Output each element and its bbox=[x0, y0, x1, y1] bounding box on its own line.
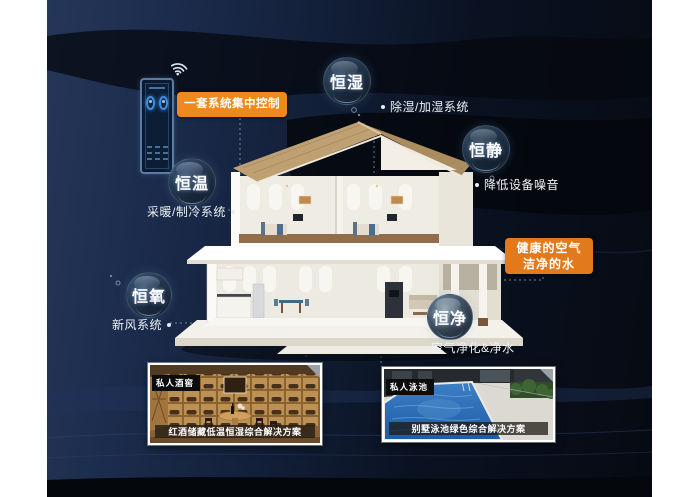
health-line-2: 洁净的水 bbox=[505, 256, 593, 272]
bullet-dot-icon bbox=[422, 346, 426, 350]
bubble-label: 恒湿 bbox=[330, 69, 364, 93]
note-fresh-air-system: 新风系统 bbox=[112, 316, 171, 333]
bubble-label: 恒温 bbox=[175, 170, 209, 194]
health-line-1: 健康的空气 bbox=[505, 240, 593, 256]
bullet-dot-icon bbox=[475, 183, 479, 187]
note-text: 采暖/制冷系统 bbox=[147, 203, 226, 220]
folded-corner-icon bbox=[540, 369, 553, 382]
note-text: 除湿/加湿系统 bbox=[390, 98, 469, 115]
dial-icon bbox=[159, 96, 168, 110]
central-control-label: 一套系统集中控制 bbox=[177, 92, 287, 117]
bubble-label: 恒氧 bbox=[132, 283, 166, 307]
bubble-hengjing: 恒静 bbox=[462, 125, 510, 173]
phone-screen bbox=[145, 83, 169, 169]
photo-caption: 红酒储藏低温恒湿综合解决方案 bbox=[155, 425, 315, 438]
note-text: 新风系统 bbox=[112, 316, 162, 333]
photo-swimming-pool: 私人泳池 别墅泳池绿色综合解决方案 bbox=[382, 367, 555, 442]
note-air-water-purification: 空气净化&净水 bbox=[422, 339, 515, 356]
note-noise-reduction: 降低设备噪音 bbox=[475, 176, 559, 193]
note-dehumidify-system: 除湿/加湿系统 bbox=[381, 98, 469, 115]
photo-tag: 私人酒窖 bbox=[152, 375, 200, 391]
folded-corner-icon bbox=[307, 365, 320, 378]
note-text: 空气净化&净水 bbox=[431, 339, 515, 356]
photo-wine-cellar: 私人酒窖 红酒储藏低温恒湿综合解决方案 bbox=[148, 363, 322, 445]
bubble-hengshi: 恒湿 bbox=[323, 57, 371, 105]
bullet-dot-icon bbox=[167, 323, 171, 327]
dial-icon bbox=[146, 96, 155, 110]
smart-home-app-phone bbox=[140, 78, 174, 174]
phone-app-header bbox=[149, 87, 165, 89]
bullet-dot-icon bbox=[381, 105, 385, 109]
bubble-label: 恒净 bbox=[433, 305, 467, 329]
bubble-hengyang: 恒氧 bbox=[126, 272, 172, 318]
bubble-label: 恒静 bbox=[469, 137, 503, 161]
scene-background: 一套系统集中控制 恒湿 恒静 恒温 恒氧 恒净 除湿/加湿系统 降低设备噪音 采… bbox=[47, 0, 652, 497]
phone-stat-rows bbox=[146, 146, 168, 160]
bullet-dot-icon bbox=[231, 210, 235, 214]
note-heating-cooling-system: 采暖/制冷系统 bbox=[147, 203, 235, 220]
bubble-hengjin: 恒净 bbox=[427, 294, 473, 340]
bubble-hengwen: 恒温 bbox=[168, 158, 216, 206]
photo-caption: 别墅泳池绿色综合解决方案 bbox=[389, 422, 548, 435]
phone-control-dials bbox=[146, 96, 168, 110]
photo-tag: 私人泳池 bbox=[386, 379, 434, 395]
health-highlight-box: 健康的空气 洁净的水 bbox=[505, 238, 593, 274]
infographic-page: 一套系统集中控制 恒湿 恒静 恒温 恒氧 恒净 除湿/加湿系统 降低设备噪音 采… bbox=[0, 0, 700, 497]
note-text: 降低设备噪音 bbox=[484, 176, 559, 193]
